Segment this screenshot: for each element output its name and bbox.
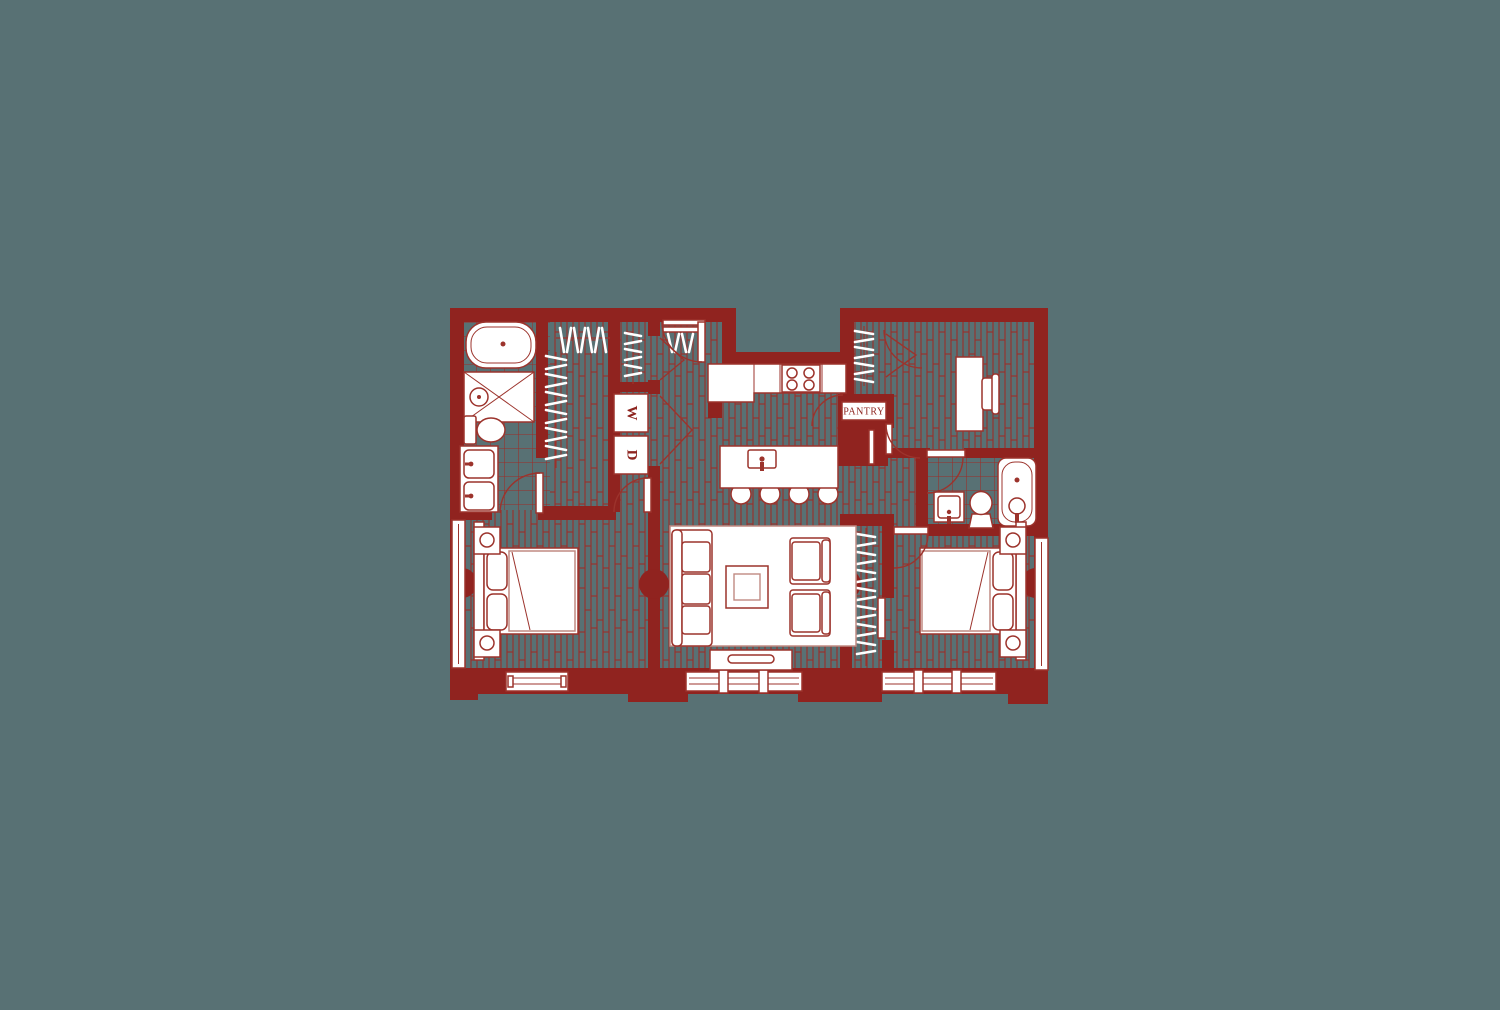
nightstand <box>474 630 500 657</box>
wall-stub <box>648 380 660 394</box>
floor-plan: W D PANTRY <box>0 0 1500 1010</box>
pillow <box>487 594 507 630</box>
armchair <box>790 590 830 636</box>
wall-closet2-top <box>840 514 894 526</box>
pantry-label: PANTRY <box>843 406 885 417</box>
window-left-wall <box>452 520 465 668</box>
bed1 <box>484 548 578 634</box>
window-right-wall <box>1035 538 1048 670</box>
structural-column <box>639 569 669 599</box>
freestanding-tub <box>466 322 536 368</box>
pillow <box>993 594 1013 630</box>
bath2-toilet <box>969 492 993 529</box>
wall-tab <box>798 692 882 702</box>
tv-console <box>710 650 792 670</box>
armchair <box>790 538 830 584</box>
window-living <box>686 670 802 693</box>
bath2-sink <box>934 492 964 524</box>
wall-closet2-east-upper <box>882 514 894 598</box>
exterior-wall-top-right <box>840 308 1048 322</box>
wall-tab <box>1008 692 1048 704</box>
nightstand <box>1000 630 1026 657</box>
sofa <box>672 530 712 646</box>
washer-label: W <box>624 406 640 421</box>
pillow <box>993 552 1013 590</box>
wall-tab <box>628 692 688 702</box>
double-vanity <box>460 446 498 512</box>
kitchen-island <box>720 446 838 504</box>
toilet <box>464 416 505 444</box>
exterior-notch <box>724 300 852 354</box>
coffee-table <box>726 566 768 608</box>
walk-in-shower <box>464 372 534 422</box>
wall-stub <box>648 318 660 336</box>
wall-bath2-west <box>916 458 928 528</box>
floor-plan-svg: W D PANTRY <box>0 0 1500 1010</box>
nightstand <box>474 527 500 554</box>
desk-chair <box>982 374 999 414</box>
pantry-door-leaf <box>869 430 874 464</box>
bed2 <box>920 548 1016 634</box>
wall-closet2-east-lower <box>882 640 894 676</box>
wall-den-south-right <box>964 448 1038 458</box>
desk <box>956 357 983 431</box>
pillow <box>487 552 507 590</box>
cooktop <box>782 365 820 392</box>
nightstand <box>1000 527 1026 554</box>
wall-bath1-south-right <box>538 506 616 520</box>
bath2-tub <box>998 458 1036 526</box>
window-bed2 <box>882 670 996 693</box>
closet2-door-leaf <box>878 598 885 638</box>
dryer-label: D <box>624 450 640 461</box>
window-bed1 <box>506 672 568 691</box>
wall-tab <box>450 690 478 700</box>
